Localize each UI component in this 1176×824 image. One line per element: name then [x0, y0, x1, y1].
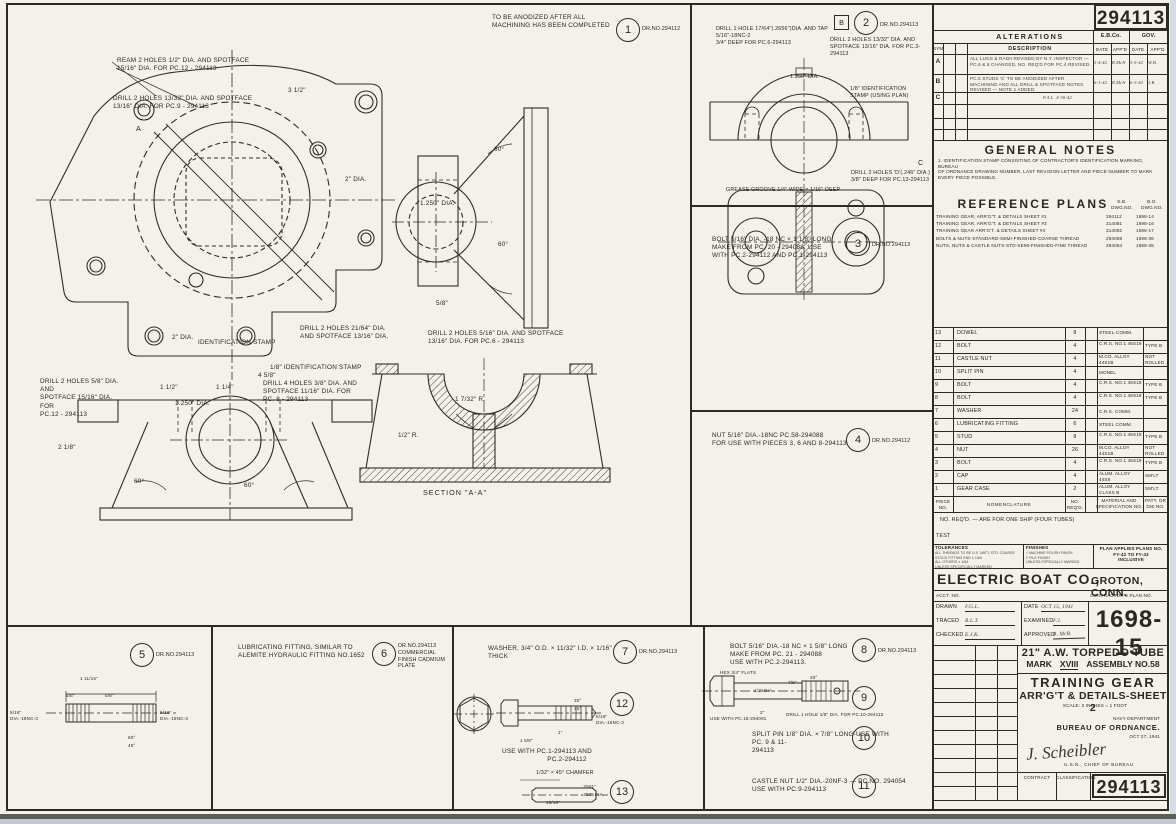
parts-footnote: NO. REQ'D. — ARE FOR ONE SHIP (FOUR TUBE… — [940, 517, 1074, 524]
refplan-row: NUTS, NUTS & CASTLE NUTS-STD-SEMI-FINISH… — [936, 243, 1168, 249]
fin-line3: UNLESS ESPECIALLY MARKED — [1026, 560, 1090, 565]
part-qty: 4 — [1065, 473, 1085, 480]
refplan-bo: 1698-17 — [1136, 228, 1154, 234]
parts-header-no: PIECE NO. — [933, 499, 953, 510]
part-note: TYPE B — [1145, 395, 1167, 401]
drawing-number-top: 294113 — [1096, 7, 1166, 32]
contract-label: CONTRACT — [1018, 775, 1056, 781]
splitpin-note: SPLIT PIN 1/8" DIA. × 7/8" LONG-USE WITH… — [752, 731, 902, 756]
company-name: ELECTRIC BOAT CO., — [937, 571, 1100, 587]
balloon-4-drno: DR.NO.294112 — [872, 438, 910, 445]
bureau-date: OCT 27, 1941 — [1080, 734, 1160, 740]
part-qty: 8 — [1065, 434, 1085, 441]
alterations-description-header: DESCRIPTION — [967, 46, 1093, 53]
alt-row-a-letter: A — [933, 58, 943, 66]
bolt12-use-line1: USE WITH PC.1-294113 AND — [502, 748, 632, 756]
drill-pc8-line2: SPOTFACE 11/16" DIA. FOR — [263, 388, 373, 396]
scale-note: SCALE: 3 INCHES = 1 FOOT — [1040, 703, 1150, 709]
drill-pc6-line1: DRILL 2 HOLES 5/16" DIA. AND SPOTFACE — [428, 330, 598, 338]
alt-row-b-letter: B — [933, 78, 943, 86]
part-no: 4 — [935, 447, 938, 454]
part-name: BOLT — [957, 395, 971, 402]
tol-line1: ALL THREADS TO BE U.S. NAT'L STD. COARSE — [935, 551, 1021, 556]
drill-2164-line1: DRILL 2 HOLES 21/64" DIA. — [300, 325, 400, 333]
stud-thread-right-label: 5/16" DIA.-18NC-3 — [160, 710, 192, 721]
part-name: BOLT — [957, 343, 971, 350]
finishes-label: FINISHES — [1026, 545, 1048, 551]
reference-plans-title: REFERENCE PLANS — [933, 197, 1133, 213]
traced-value: B.L.T. — [965, 618, 1015, 626]
bureau-of-ordnance: BUREAU OF ORDNANCE. — [1040, 723, 1160, 732]
alt-row-b-desc: PC.5 STUDS 'C' TO BE ANODIZED AFTER MACH… — [970, 76, 1091, 93]
gear-subtitle: ARR'G'T & DETAILS-SHEET 2 — [1018, 690, 1168, 714]
frame-line — [933, 800, 1168, 801]
dim-cone-58: 5/8" — [436, 300, 448, 308]
general-notes-title: GENERAL NOTES — [933, 143, 1168, 159]
castlenut-line1: CASTLE NUT 1/2" DIA.-20NF-3 — PC.NO. 294… — [752, 778, 912, 786]
balloon-4: 4 — [846, 428, 870, 452]
ream-line2: 15/16" DIA. FOR PC.12 - 294113 — [117, 65, 287, 73]
alterations-title: ALTERATIONS — [967, 32, 1093, 41]
dim-sect-r2: 1/2" R. — [398, 432, 419, 440]
refplan-name: TRAINING GEAR, ARR'G'T. & DETAILS SHEET … — [936, 221, 1106, 227]
balloon-6: 6 — [372, 642, 396, 666]
balloon-3-number: 3 — [855, 238, 861, 250]
cap-tap-line1: DRILL 1 HOLE 17/64"(.2656")DIA. AND TAP … — [716, 26, 846, 40]
section-cut-letter: A — [136, 124, 141, 133]
refplan-eb: 314082 — [1106, 228, 1136, 234]
stud-thread-left-dim: 5/8" — [66, 693, 75, 699]
parts-header-note: PATT. OR DIE NO. — [1143, 498, 1168, 509]
refplan-name: NUTS, NUTS & CASTLE NUTS-STD-SEMI-FINISH… — [936, 243, 1106, 249]
drill-2164-note: DRILL 2 HOLES 21/64" DIA. AND SPOTFACE 1… — [300, 325, 400, 341]
part-mat: ALUM. ALLOY 44S8 — [1099, 471, 1143, 482]
refplan-row: TRAINING GEAR, ARR'G'T. & DETAILS SHEET … — [936, 214, 1168, 220]
drawn-value: F.G.L. — [965, 604, 1015, 612]
part-qty: 4 — [1065, 369, 1085, 376]
refplan-name: TRAINING GEAR ARR'G'T. & DETAILS SHEET #… — [936, 228, 1106, 234]
refplans-col1-header: E.B. DWG.NO. — [1108, 199, 1136, 210]
part-qty: 4 — [1065, 395, 1085, 402]
balloon-9: 9 — [852, 686, 876, 710]
tolerances-label: TOLERANCES — [935, 545, 968, 551]
alt-row-b-ebdate: 6-1-42 — [1094, 80, 1111, 86]
applies-line1: PLAN APPLIES PLANS NO. — [1095, 546, 1167, 552]
drill-pc12-line1: DRILL 2 HOLES 5/8" DIA. AND — [40, 378, 120, 394]
plan-applies-note: PLAN APPLIES PLANS NO. FY-42 TO FY-43 IN… — [1095, 546, 1167, 563]
stud-angle-45: 45° — [128, 743, 135, 749]
applies-line3: INCLUSIVE — [1095, 557, 1167, 563]
part-name: CAP — [957, 473, 969, 480]
drill-pc6-line2: 13/16" DIA. FOR PC.6 - 294113 — [428, 338, 598, 346]
acct-no-label: ACCT. NO. — [936, 593, 960, 599]
alt-row-c-letter: C — [933, 94, 943, 102]
drill-pc8-note: DRILL 4 HOLES 3/8" DIA. AND SPOTFACE 11/… — [263, 380, 373, 405]
drill-pc9-note: DRILL 2 HOLES 13/32" DIA. AND SPOTFACE 1… — [113, 95, 283, 111]
title-side-table — [933, 646, 1018, 800]
balloon-1: 1 — [616, 18, 640, 42]
approval-signature: J. Scheibler — [1025, 739, 1106, 765]
general-notes-body: 1. IDENTIFICATION STAMP CONSISTING OF CO… — [938, 158, 1164, 181]
parts-header-mat: MATERIAL AND SPECIFICATION NO. — [1091, 498, 1147, 509]
balloon-1-number: 1 — [625, 24, 631, 36]
part-note: TYPE B — [1145, 382, 1167, 388]
bolt12-use-line2: PC.2-294112 — [502, 756, 632, 764]
dim-plan-1: 3 1/2" — [288, 87, 306, 95]
test-label: TEST — [936, 533, 950, 540]
refplan-bo: 1698-14 — [1136, 214, 1154, 220]
part-mat: M.CO. ALLOY 44S1B — [1099, 354, 1143, 365]
bolt12-thread-label: 5/16" DIA.-18NC-3 — [596, 714, 630, 725]
refplan-row: TRAINING GEAR ARR'G'T. & DETAILS SHEET #… — [936, 228, 1168, 234]
bolt9-use-note: USE WITH PC.15-294091 — [710, 716, 767, 722]
drill-pc12-line2: SPOTFACE 15/16" DIA. FOR — [40, 394, 120, 410]
part-no: 2 — [935, 473, 938, 480]
cap-groove-note: GREASE GROOVE 1/4" WIDE × 1/16" DEEP — [726, 187, 886, 194]
cap-ident-line2: STAMP (USING PLAN) — [850, 93, 930, 100]
part-note: SM'LT — [1145, 486, 1167, 492]
part-no: 8 — [935, 395, 938, 402]
stud-angle-60: 60° — [128, 735, 135, 741]
parts-header-name: NOMENCLATURE — [953, 502, 1065, 508]
cap-bore-dim: 1.250" DIA. — [790, 74, 819, 81]
stud-thread-right-dim: 5/8" — [105, 693, 114, 699]
part-no: 6 — [935, 421, 938, 428]
drawing-number-box-bottom: 294113 — [1092, 774, 1166, 798]
dim-elev-bore: 1.250" DIA. — [175, 400, 210, 408]
balloon-1-drno: DR.NO.294112 — [642, 26, 680, 33]
dowel-dia-dim: .250" DIA. — [582, 792, 604, 798]
paper-right-edge — [1170, 0, 1176, 824]
ream-note: REAM 2 HOLES 1/2" DIA. AND SPOTFACE 15/1… — [117, 57, 287, 73]
alt-date-header-1: DATE — [1093, 47, 1111, 53]
alterations-table: ALTERATIONS E.B.Co. GOV. SYM DESCRIPTION… — [933, 30, 1168, 140]
refplans-col2-header: B.O. DWG.NO. — [1138, 199, 1166, 210]
alt-side-note: F.A.L. 4-30-42 — [1043, 95, 1072, 101]
blueprint-sheet: TO BE ANODIZED AFTER ALL MACHINING HAS B… — [0, 0, 1176, 824]
splitpin-line1: SPLIT PIN 1/8" DIA. × 7/8" LONG-USE WITH… — [752, 731, 902, 747]
lube-finish-line2: FINISH CADMIUM — [398, 657, 468, 664]
frame-line — [211, 625, 213, 809]
alt-row-a-ebappd: R.McN — [1112, 60, 1129, 66]
date-label: DATE — [1024, 604, 1039, 611]
balloon-10: 10 — [852, 726, 876, 750]
bolt9-78-dim: 7/8" — [788, 680, 797, 686]
section-aa-label: SECTION "A-A" — [400, 488, 510, 497]
part-no: 5 — [935, 434, 938, 441]
washer-note: WASHER, 3/4" O.D. × 11/32" I.D. × 1/16" … — [488, 645, 618, 661]
refplan-row: BOLTS & NUTS-STANDARD-SEMI-FINISHED-COAR… — [936, 236, 1168, 242]
part-mat: C.R.S. NO.1 46S18 — [1099, 341, 1143, 347]
balloon-5-drno: DR.NO.294113 — [156, 652, 194, 659]
part-qty: 2 — [1065, 486, 1085, 493]
balloon-7-number: 7 — [622, 646, 628, 658]
bolt3-note: BOLT 5/16" DIA. -18 NC × 1 1/8" LONG MAK… — [712, 236, 862, 261]
balloon-11-number: 11 — [858, 780, 869, 792]
balloon-9-number: 9 — [861, 692, 867, 704]
cap-ident-line1: 1/8" IDENTIFICATION — [850, 86, 930, 93]
bolt3-line3: WITH PC.2-294112 AND PC.1-294113 — [712, 252, 862, 260]
part-qty: 4 — [1065, 356, 1085, 363]
signoff-block: DRAWN F.G.L. TRACED B.L.T. CHECKED E.J.K… — [933, 601, 1168, 645]
lube-finish-line3: PLATE — [398, 663, 468, 670]
drill-pc9-line2: 13/16" DIA. FOR PC.9 - 294113 — [113, 103, 283, 111]
refplan-eb: 314081 — [1106, 221, 1136, 227]
balloon-2-number: 2 — [863, 17, 869, 29]
refplan-bo: 1698-35 — [1136, 243, 1154, 249]
part-note: TYPE B — [1145, 460, 1167, 466]
ident-stamp-note: 1/8" IDENTIFICATION STAMP — [270, 364, 362, 372]
part-note: SM'LT — [1145, 473, 1167, 479]
dim-elev-1: 2 1/8" — [58, 444, 76, 452]
general-note-line3: EVERY PIECE POSSIBLE. — [938, 175, 1164, 181]
lube-line1: LUBRICATING FITTING, SIMILAR TO — [238, 644, 388, 652]
tolerances-strip: TOLERANCES ALL THREADS TO BE U.S. NAT'L … — [933, 544, 1168, 568]
part-mat: M.CO. ALLOY 44S1B — [1099, 445, 1143, 456]
bolt12-length: 1 5/8" — [520, 738, 533, 744]
part-no: 11 — [935, 356, 941, 363]
splitpin-line2: 294113 — [752, 747, 902, 755]
balloon-8-drno: DR.NO.294113 — [878, 648, 916, 655]
dim-cone-60a: 60° — [494, 146, 504, 154]
part-qty: 24 — [1065, 408, 1085, 415]
drill-pc12-line3: PC.12 - 294113 — [40, 411, 120, 419]
part-name: NUT — [957, 447, 969, 454]
dim-plan-3: 4 5/8" — [258, 372, 276, 380]
approved-label: APPROVED — [1024, 632, 1055, 639]
lube-finish-line1: COMMERCIAL — [398, 650, 468, 657]
dowel-fit-dim: .2501" — [582, 784, 596, 790]
drawn-label: DRAWN — [936, 604, 957, 611]
part-no: 10 — [935, 369, 941, 376]
reference-plans-list: TRAINING GEAR, ARR'G'T. & DETAILS SHEET … — [936, 214, 1168, 249]
dim-elev-3: 1 1/4" — [216, 384, 234, 392]
bolt12-detail-drawing — [452, 686, 612, 744]
dim-cone-bore: 1.250" DIA. — [420, 200, 455, 208]
balloon-7-drno: DR.NO.294113 — [639, 649, 677, 656]
alterations-gov: GOV. — [1129, 33, 1168, 40]
mark-label: MARK — [1026, 659, 1052, 670]
part-qty: 4 — [1065, 382, 1085, 389]
dowel-length-dim: 15/16" — [546, 800, 560, 806]
part-qty: 8 — [1065, 330, 1085, 337]
ream-line1: REAM 2 HOLES 1/2" DIA. AND SPOTFACE — [117, 57, 287, 65]
refplans-col1b: DWG.NO. — [1108, 205, 1136, 211]
alt-appd-header-2: APP'D — [1147, 47, 1168, 53]
paper-bottom-edge — [0, 819, 1176, 824]
part-note: NOT ROLLED — [1145, 445, 1167, 456]
bolt12-angle45: 45° — [574, 706, 581, 712]
refplan-bo: 1698-16 — [1136, 221, 1154, 227]
refplans-col2b: DWG.NO. — [1138, 205, 1166, 211]
parts-header-qty: NO. REQ'D. — [1063, 499, 1087, 510]
bolt12-thread-len: 1" — [558, 730, 563, 736]
balloon-5-number: 5 — [139, 649, 145, 661]
company-band: ELECTRIC BOAT CO., GROTON, CONN. — [933, 569, 1168, 591]
bolt12-angle30: 30° — [574, 698, 581, 704]
general-note-line1: 1. IDENTIFICATION STAMP CONSISTING OF CO… — [938, 158, 1164, 169]
alt-row-a-desc: ALL LUGS & RADII REVISED BY N.Y. INSPECT… — [970, 56, 1091, 67]
date-value: OCT 15, 1941 — [1041, 604, 1085, 612]
part-mat: MONEL — [1099, 370, 1143, 376]
mark-assembly-row: MARK XVIII ASSEMBLY NO.58 — [1018, 659, 1168, 670]
dim-sect-r: 1 7/32" R. — [455, 396, 485, 404]
drill-pc8-line1: DRILL 4 HOLES 3/8" DIA. AND — [263, 380, 373, 388]
frame-line — [6, 3, 1169, 5]
navy-dept: NAVY DEPARTMENT — [1060, 716, 1160, 722]
cap-dowel-line1: DRILL 2 HOLES 'D'(.246" DIA.) — [851, 170, 941, 177]
alt-row-b-govdate: 6-3-42 — [1130, 80, 1147, 86]
part-qty: 26 — [1065, 447, 1085, 454]
dim-elev-2: 1 1/2" — [160, 384, 178, 392]
alt-row-a-ebdate: 3-4-42 — [1094, 60, 1111, 66]
examined-value: F.J. — [1053, 618, 1085, 626]
part-no: 9 — [935, 382, 938, 389]
part-name: LUBRICATING FITTING — [957, 421, 1018, 428]
part-qty: 4 — [1065, 343, 1085, 350]
alterations-sym-header: SYM — [933, 46, 943, 52]
part-mat: C.R.S. NO.1 46S18 — [1099, 432, 1143, 438]
cone-view-drawing — [392, 102, 577, 337]
bolt12-use-note: USE WITH PC.1-294113 AND PC.2-294112 — [502, 748, 632, 764]
drill-pc8-line3: PC. 8 - 294113 — [263, 396, 373, 404]
part-name: SPLIT PIN — [957, 369, 984, 376]
lube-finish-note: DR.NO.294113 COMMERCIAL FINISH CADMIUM P… — [398, 643, 468, 670]
dim-plan-2b: 2" DIA. — [172, 334, 193, 342]
frame-line — [690, 3, 692, 626]
cap-drill-line2: SPOTFACE 13/16" DIA. FOR PC.3-294113 — [830, 44, 930, 58]
part-name: DOWEL — [957, 330, 978, 337]
castlenut-note: CASTLE NUT 1/2" DIA.-20NF-3 — PC.NO. 294… — [752, 778, 912, 794]
part-note: NOT ROLLED — [1145, 354, 1167, 365]
bolt9-dia-label: 1/2" DIA. — [754, 688, 774, 694]
checked-label: CHECKED — [936, 632, 963, 639]
part-no: 7 — [935, 408, 938, 415]
part-qty: 4 — [1065, 460, 1085, 467]
part-no: 12 — [935, 343, 941, 350]
refplan-eb: 294112 — [1106, 214, 1136, 220]
section-aa-drawing — [352, 358, 617, 498]
cap-ident-note: 1/8" IDENTIFICATION STAMP (USING PLAN) — [850, 86, 930, 100]
part-mat: C.R.S. NO.1 46S18 — [1099, 380, 1143, 386]
examined-label: EXAMINED — [1024, 618, 1053, 625]
lube-drno: DR.NO.294113 — [398, 643, 468, 650]
traced-label: TRACED — [936, 618, 959, 625]
balloon-4-number: 4 — [855, 434, 861, 446]
refplan-name: TRAINING GEAR, ARR'G'T. & DETAILS SHEET … — [936, 214, 1106, 220]
part-name: CASTLE NUT — [957, 356, 992, 363]
frame-line — [690, 410, 932, 412]
alterations-ebco: E.B.Co. — [1093, 33, 1129, 40]
lube-line2: ALEMITE HYDRAULIC FITTING NO.1652 — [238, 652, 388, 660]
contractors-plan-label: CONTRACTOR'S PLAN NO. — [1090, 593, 1152, 599]
drill-2164-line2: AND SPOTFACE 13/16" DIA. — [300, 333, 400, 341]
bolt9-2in-dim: 2" — [760, 710, 765, 716]
balloon-10-number: 10 — [858, 732, 870, 744]
balloon-11: 11 — [852, 774, 876, 798]
refplan-eb: 294054 — [1106, 243, 1136, 249]
tolerances-body: ALL THREADS TO BE U.S. NAT'L STD. COARSE… — [935, 551, 1021, 570]
part-name: BOLT — [957, 382, 971, 389]
balloon-7: 7 — [613, 640, 637, 664]
alt-row-b-govappd: J.B. — [1148, 80, 1168, 86]
part-name: STUD — [957, 434, 972, 441]
balloon-5: 5 — [130, 643, 154, 667]
part-mat: C.R.S. NO.1 46S18 — [1099, 458, 1143, 464]
bolt3-line2: MAKE FROM PC. 20 - 294088. USE — [712, 244, 862, 252]
balloon-2: 2 — [854, 11, 878, 35]
drill-pc9-line1: DRILL 2 HOLES 13/32" DIA. AND SPOTFACE — [113, 95, 283, 103]
bolt9-drill-note: DRILL 1 HOLE 1/8" DIA. FOR PC.10-294113 — [786, 712, 906, 718]
part-mat: STEEL-COMM. — [1099, 330, 1143, 336]
part-no: 1 — [935, 486, 938, 493]
part-no: 3 — [935, 460, 938, 467]
part-note: TYPE B — [1145, 434, 1167, 440]
part-mat: STEEL COMM. — [1099, 422, 1143, 428]
part-mat: C.R.S. COMM. — [1099, 409, 1143, 415]
alt-row-b-ebappd: R.McN — [1112, 80, 1129, 86]
cap-tap-line2: 3/4" DEEP FOR PC.6-294113 — [716, 40, 846, 47]
stud-thread-left-label: 5/16" DIA.-18NC-3 — [10, 710, 42, 721]
tube-title: 21" A.W. TORPEDO TUBE — [1018, 647, 1168, 659]
drill-pc6-note: DRILL 2 HOLES 5/16" DIA. AND SPOTFACE 13… — [428, 330, 598, 346]
gear-title: TRAINING GEAR — [1018, 675, 1168, 690]
ident-stamp2-note: IDENTIFICATION STAMP — [198, 339, 276, 347]
checked-value: E.J.K. — [965, 632, 1015, 640]
part-no: 13 — [935, 330, 941, 337]
classification-label: CLASSIFICATION — [1056, 775, 1090, 781]
balloon-2-drno: DR.NO.294113 — [880, 22, 918, 29]
part-name: WASHER — [957, 408, 981, 415]
approved-value: R. McB. — [1053, 630, 1085, 639]
signature-subtitle: U.S.N., CHIEF OF BUREAU — [1064, 762, 1133, 768]
alt-row-a-govappd: W.B. — [1148, 60, 1168, 66]
alt-date-header-2: DATE — [1129, 47, 1147, 53]
balloon-3: 3 — [846, 232, 870, 256]
assembly-value: ASSEMBLY NO.58 — [1086, 659, 1159, 670]
mark-value: XVIII — [1060, 659, 1078, 670]
dowel-chamfer-note: 1/32" × 45° CHAMFER — [536, 770, 594, 777]
torpedo-band: 21" A.W. TORPEDO TUBE MARK XVIII ASSEMBL… — [1018, 646, 1168, 673]
frame-line — [6, 3, 8, 811]
part-note: TYPE B — [1145, 343, 1167, 349]
frame-line — [6, 625, 932, 627]
dim-elev-60b: 60° — [244, 482, 254, 490]
drill-pc12-note: DRILL 2 HOLES 5/8" DIA. AND SPOTFACE 15/… — [40, 378, 120, 419]
cap-dowel-note: DRILL 2 HOLES 'D'(.246" DIA.) 3/8" DEEP … — [851, 170, 941, 184]
bolt3-line1: BOLT 5/16" DIA. -18 NC × 1 1/8" LONG — [712, 236, 862, 244]
castlenut-line2: USE WITH PC.9-294113 — [752, 786, 912, 794]
bolt9-detail-drawing — [700, 658, 880, 720]
cap-tap-note: DRILL 1 HOLE 17/64"(.2656")DIA. AND TAP … — [716, 26, 846, 46]
alt-row-a-govdate: 3-5-42 — [1130, 60, 1147, 66]
bolt8-line1: BOLT 5/16" DIA.-18 NC × 1 5/8" LONG — [730, 643, 865, 651]
refplan-row: TRAINING GEAR, ARR'G'T. & DETAILS SHEET … — [936, 221, 1168, 227]
balloon-12: 12 — [610, 692, 634, 716]
bolt9-angle30: 30° — [810, 675, 817, 681]
alt-appd-header-1: APP'D — [1111, 47, 1129, 53]
part-qty: 6 — [1065, 421, 1085, 428]
part-mat: C.R.S. NO.1 46S18 — [1099, 393, 1143, 399]
cap-dowel-line2: 3/8" DEEP FOR PC.13-294113 — [851, 177, 941, 184]
cap-drill-line1: DRILL 2 HOLES 13/32" DIA. AND — [830, 37, 930, 44]
dim-cone-60b: 60° — [498, 241, 508, 249]
balloon-12-number: 12 — [616, 698, 628, 710]
cap-drill-note: DRILL 2 HOLES 13/32" DIA. AND SPOTFACE 1… — [830, 37, 930, 57]
refplan-bo: 1698-36 — [1136, 236, 1154, 242]
balloon-3-drno: DR.NO.294113 — [872, 242, 910, 249]
balloon-13: 13 — [610, 780, 634, 804]
